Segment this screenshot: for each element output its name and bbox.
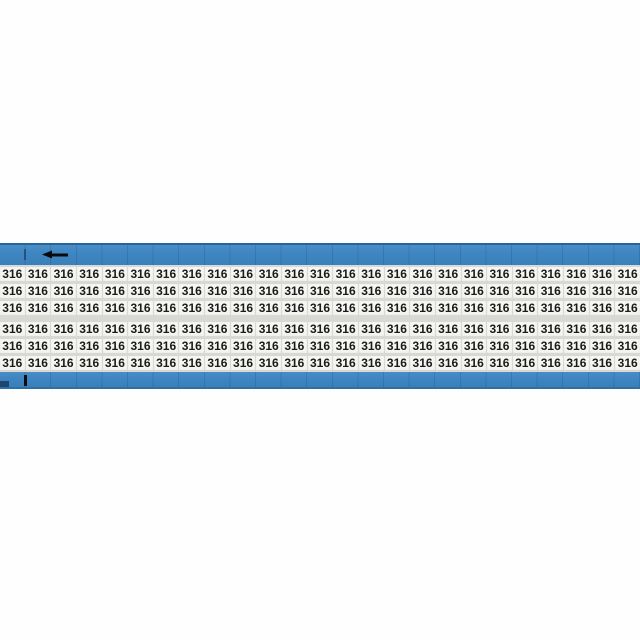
- wire-marker-cell: 316: [615, 339, 640, 353]
- wire-marker-cell: 316: [179, 339, 204, 353]
- wire-marker-cell: 316: [154, 267, 179, 281]
- wire-marker-cell: 316: [436, 284, 461, 298]
- wire-marker-cell: 316: [0, 267, 25, 281]
- wire-marker-cell: 316: [564, 322, 589, 336]
- wire-marker-cell: 316: [513, 284, 538, 298]
- wire-marker-cell: 316: [154, 284, 179, 298]
- marker-bank-bottom: 3163163163163163163163163163163163163163…: [0, 322, 640, 370]
- wire-marker-cell: 316: [462, 339, 487, 353]
- wire-marker-cell: 316: [231, 301, 256, 315]
- wire-marker-cell: 316: [282, 356, 307, 370]
- wire-marker-cell: 316: [103, 339, 128, 353]
- wire-marker-cell: 316: [590, 339, 615, 353]
- wire-marker-cell: 316: [51, 339, 76, 353]
- wire-marker-cell: 316: [51, 284, 76, 298]
- wire-marker-cell: 316: [487, 267, 512, 281]
- product-photo: 3163163163163163163163163163163163163163…: [0, 0, 640, 640]
- wire-marker-cell: 316: [282, 301, 307, 315]
- wire-marker-cell: 316: [436, 267, 461, 281]
- wire-marker-cell: 316: [487, 339, 512, 353]
- wire-marker-cell: 316: [205, 284, 230, 298]
- wire-marker-cell: 316: [103, 284, 128, 298]
- wire-marker-cell: 316: [436, 322, 461, 336]
- wire-marker-cell: 316: [333, 301, 358, 315]
- wire-marker-cell: 316: [538, 339, 563, 353]
- wire-marker-cell: 316: [590, 356, 615, 370]
- corner-mark: [0, 381, 9, 387]
- wire-marker-cell: 316: [231, 356, 256, 370]
- wire-marker-cell: 316: [333, 322, 358, 336]
- wire-marker-cell: 316: [308, 322, 333, 336]
- wire-marker-cell: 316: [256, 301, 281, 315]
- wire-marker-cell: 316: [77, 356, 102, 370]
- wire-marker-cell: 316: [513, 322, 538, 336]
- wire-marker-cell: 316: [205, 339, 230, 353]
- wire-marker-cell: 316: [462, 284, 487, 298]
- wire-marker-cell: 316: [359, 356, 384, 370]
- wire-marker-cell: 316: [26, 267, 51, 281]
- wire-marker-cell: 316: [564, 356, 589, 370]
- wire-marker-cell: 316: [487, 301, 512, 315]
- wire-marker-cell: 316: [51, 267, 76, 281]
- wire-marker-cell: 316: [154, 356, 179, 370]
- wire-marker-cell: 316: [590, 284, 615, 298]
- wire-marker-cell: 316: [256, 339, 281, 353]
- wire-marker-cell: 316: [462, 267, 487, 281]
- wire-marker-cell: 316: [538, 284, 563, 298]
- wire-marker-cell: 316: [205, 356, 230, 370]
- wire-marker-cell: 316: [51, 322, 76, 336]
- wire-marker-cell: 316: [103, 301, 128, 315]
- wire-marker-cell: 316: [538, 356, 563, 370]
- wire-marker-cell: 316: [538, 267, 563, 281]
- wire-marker-cell: 316: [128, 322, 153, 336]
- wire-marker-cell: 316: [128, 267, 153, 281]
- wire-marker-cell: 316: [385, 339, 410, 353]
- wire-marker-cell: 316: [564, 339, 589, 353]
- wire-marker-cell: 316: [487, 284, 512, 298]
- wire-marker-cell: 316: [128, 356, 153, 370]
- wire-marker-cell: 316: [564, 301, 589, 315]
- wire-marker-cell: 316: [538, 301, 563, 315]
- left-arrow-icon: [42, 251, 68, 260]
- wire-marker-cell: 316: [385, 356, 410, 370]
- marker-bank-top: 3163163163163163163163163163163163163163…: [0, 267, 640, 315]
- wire-marker-cell: 316: [410, 356, 435, 370]
- wire-marker-cell: 316: [205, 301, 230, 315]
- wire-marker-cell: 316: [308, 267, 333, 281]
- wire-marker-cell: 316: [487, 322, 512, 336]
- wire-marker-cell: 316: [26, 339, 51, 353]
- wire-marker-cell: 316: [590, 267, 615, 281]
- wire-marker-cell: 316: [103, 322, 128, 336]
- wire-marker-cell: 316: [410, 322, 435, 336]
- wire-marker-cell: 316: [77, 284, 102, 298]
- wire-marker-cell: 316: [231, 284, 256, 298]
- marker-grid: 3163163163163163163163163163163163163163…: [0, 265, 640, 372]
- wire-marker-cell: 316: [410, 284, 435, 298]
- registration-tick-top: [24, 249, 26, 260]
- wire-marker-cell: 316: [564, 267, 589, 281]
- wire-marker-cell: 316: [256, 267, 281, 281]
- wire-marker-cell: 316: [282, 284, 307, 298]
- wire-marker-cell: 316: [0, 356, 25, 370]
- wire-marker-cell: 316: [436, 356, 461, 370]
- wire-marker-cell: 316: [308, 339, 333, 353]
- wire-marker-cell: 316: [179, 356, 204, 370]
- wire-marker-cell: 316: [513, 301, 538, 315]
- wire-marker-cell: 316: [128, 284, 153, 298]
- wire-marker-cell: 316: [615, 284, 640, 298]
- wire-marker-cell: 316: [564, 284, 589, 298]
- wire-marker-cell: 316: [590, 322, 615, 336]
- wire-marker-cell: 316: [308, 284, 333, 298]
- wire-marker-cell: 316: [179, 322, 204, 336]
- wire-marker-cell: 316: [359, 339, 384, 353]
- wire-marker-cell: 316: [179, 267, 204, 281]
- card-footer-strip: [0, 372, 640, 389]
- wire-marker-cell: 316: [154, 339, 179, 353]
- wire-marker-cell: 316: [385, 284, 410, 298]
- wire-marker-cell: 316: [77, 267, 102, 281]
- wire-marker-cell: 316: [333, 356, 358, 370]
- wire-marker-cell: 316: [410, 267, 435, 281]
- wire-marker-cell: 316: [333, 284, 358, 298]
- wire-marker-cell: 316: [51, 356, 76, 370]
- wire-marker-cell: 316: [333, 339, 358, 353]
- wire-marker-cell: 316: [308, 301, 333, 315]
- wire-marker-cell: 316: [615, 356, 640, 370]
- wire-marker-cell: 316: [436, 339, 461, 353]
- wire-marker-cell: 316: [615, 267, 640, 281]
- wire-marker-cell: 316: [385, 322, 410, 336]
- wire-marker-cell: 316: [385, 301, 410, 315]
- wire-marker-cell: 316: [103, 267, 128, 281]
- wire-marker-cell: 316: [103, 356, 128, 370]
- wire-marker-cell: 316: [26, 301, 51, 315]
- wire-marker-cell: 316: [513, 356, 538, 370]
- wire-marker-cell: 316: [256, 284, 281, 298]
- wire-marker-cell: 316: [513, 339, 538, 353]
- wire-marker-cell: 316: [0, 301, 25, 315]
- wire-marker-card: 3163163163163163163163163163163163163163…: [0, 243, 640, 389]
- wire-marker-cell: 316: [256, 356, 281, 370]
- wire-marker-cell: 316: [231, 322, 256, 336]
- wire-marker-cell: 316: [462, 301, 487, 315]
- wire-marker-cell: 316: [385, 267, 410, 281]
- wire-marker-cell: 316: [128, 339, 153, 353]
- wire-marker-cell: 316: [51, 301, 76, 315]
- wire-marker-cell: 316: [179, 301, 204, 315]
- wire-marker-cell: 316: [282, 322, 307, 336]
- wire-marker-cell: 316: [462, 322, 487, 336]
- wire-marker-cell: 316: [359, 322, 384, 336]
- wire-marker-cell: 316: [410, 301, 435, 315]
- wire-marker-cell: 316: [359, 301, 384, 315]
- wire-marker-cell: 316: [128, 301, 153, 315]
- wire-marker-cell: 316: [154, 322, 179, 336]
- wire-marker-cell: 316: [77, 322, 102, 336]
- wire-marker-cell: 316: [77, 339, 102, 353]
- wire-marker-cell: 316: [282, 339, 307, 353]
- wire-marker-cell: 316: [205, 267, 230, 281]
- wire-marker-cell: 316: [0, 284, 25, 298]
- wire-marker-cell: 316: [462, 356, 487, 370]
- wire-marker-cell: 316: [179, 284, 204, 298]
- wire-marker-cell: 316: [308, 356, 333, 370]
- wire-marker-cell: 316: [0, 339, 25, 353]
- wire-marker-cell: 316: [615, 322, 640, 336]
- wire-marker-cell: 316: [538, 322, 563, 336]
- wire-marker-cell: 316: [513, 267, 538, 281]
- wire-marker-cell: 316: [26, 356, 51, 370]
- wire-marker-cell: 316: [26, 322, 51, 336]
- wire-marker-cell: 316: [77, 301, 102, 315]
- wire-marker-cell: 316: [359, 267, 384, 281]
- card-header-strip: [0, 243, 640, 265]
- wire-marker-cell: 316: [487, 356, 512, 370]
- wire-marker-cell: 316: [333, 267, 358, 281]
- wire-marker-cell: 316: [26, 284, 51, 298]
- wire-marker-cell: 316: [256, 322, 281, 336]
- wire-marker-cell: 316: [205, 322, 230, 336]
- wire-marker-cell: 316: [436, 301, 461, 315]
- wire-marker-cell: 316: [0, 322, 25, 336]
- wire-marker-cell: 316: [410, 339, 435, 353]
- registration-tick-bottom: [24, 375, 27, 386]
- wire-marker-cell: 316: [231, 267, 256, 281]
- wire-marker-cell: 316: [154, 301, 179, 315]
- wire-marker-cell: 316: [231, 339, 256, 353]
- wire-marker-cell: 316: [359, 284, 384, 298]
- wire-marker-cell: 316: [282, 267, 307, 281]
- wire-marker-cell: 316: [615, 301, 640, 315]
- wire-marker-cell: 316: [590, 301, 615, 315]
